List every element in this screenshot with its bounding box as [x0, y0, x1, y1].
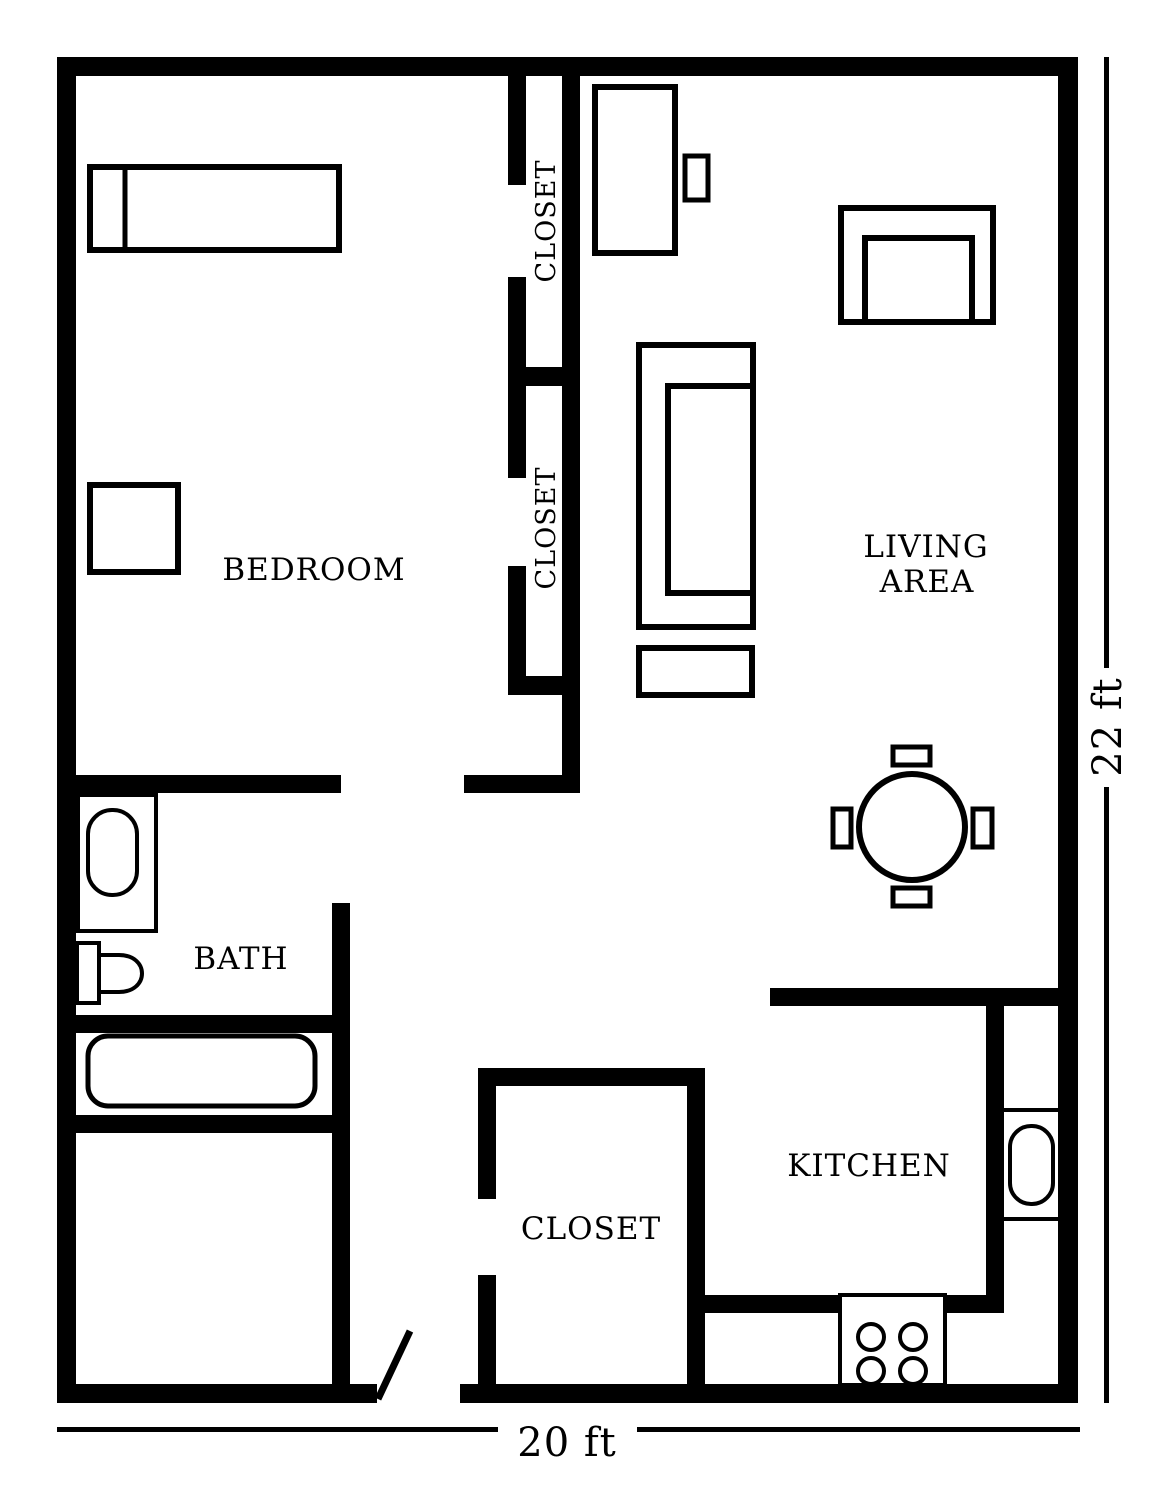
dining-chair-west	[833, 809, 851, 847]
kitchen-divider-wall	[986, 1006, 1004, 1313]
bedroom-south-wall	[57, 775, 341, 793]
wall-top	[57, 57, 1078, 76]
entry-door-leaf	[378, 1331, 410, 1399]
width-dimension-line-right	[637, 1427, 1080, 1432]
kitchen-counter-wall-east	[945, 1295, 1004, 1313]
tub-north-wall	[76, 1015, 332, 1033]
closet-west-wall-lower	[478, 1275, 496, 1385]
floor-plan: BEDROOM LIVING AREA BATH KITCHEN CLOSET …	[0, 0, 1163, 1488]
closet-west-wall-upper	[478, 1068, 496, 1199]
bedroom-furniture	[90, 167, 339, 572]
wall-left	[57, 57, 76, 1403]
closet-bottom-label: CLOSET	[521, 1211, 661, 1247]
height-dimension-line-bottom	[1104, 787, 1109, 1403]
closet-lower-label: CLOSET	[531, 467, 562, 590]
width-dimension-line-left	[57, 1427, 498, 1432]
stove-burner-4	[900, 1358, 926, 1384]
stove	[840, 1295, 945, 1385]
stove-burner-3	[858, 1358, 884, 1384]
sofa-seat	[668, 386, 753, 593]
coffee-table	[639, 648, 752, 695]
tub-south-wall	[76, 1115, 332, 1133]
toilet-tank	[77, 943, 99, 1003]
dining-table	[859, 774, 965, 880]
living-area-label-line1: LIVING	[863, 529, 988, 565]
media-console	[685, 156, 708, 200]
wall-bottom-left	[57, 1384, 377, 1403]
corridor-wall	[562, 76, 580, 793]
kitchen-north-wall	[770, 988, 1078, 1006]
bedroom-closet-bottom-cap	[508, 676, 562, 695]
bedroom-closet-divider	[508, 367, 562, 386]
living-area-furniture	[595, 87, 993, 906]
kitchen-counter-wall-west	[705, 1295, 840, 1313]
dining-chair-east	[973, 809, 992, 847]
closet-north-wall	[478, 1068, 705, 1086]
hallway-stub-wall	[464, 775, 580, 793]
height-dimension-label: 22 ft	[1085, 677, 1131, 777]
kitchen-sink	[1010, 1126, 1053, 1204]
wall-bottom-right	[460, 1384, 1078, 1403]
closet-east-wall	[687, 1068, 705, 1385]
living-area-label-line2: AREA	[879, 564, 975, 600]
bath-label: BATH	[193, 941, 288, 977]
wall-right	[1058, 57, 1078, 1403]
tv-stand	[595, 87, 675, 253]
dining-chair-south	[893, 888, 930, 906]
closet-upper-label: CLOSET	[531, 160, 562, 283]
bedroom-closet-wall-upper	[508, 76, 526, 185]
bathtub	[88, 1036, 315, 1106]
width-dimension-label: 20 ft	[517, 1420, 617, 1466]
bath-east-wall	[332, 903, 350, 1403]
kitchen-label: KITCHEN	[787, 1148, 951, 1184]
toilet-bowl	[99, 955, 142, 992]
dining-chair-north	[893, 747, 930, 765]
nightstand	[90, 485, 178, 572]
stove-burner-1	[858, 1324, 884, 1350]
stove-burner-2	[900, 1324, 926, 1350]
armchair-seat	[865, 238, 972, 322]
height-dimension-line-top	[1104, 57, 1109, 668]
bedroom-closet-wall-lower	[508, 566, 526, 695]
bathroom-sink	[88, 810, 137, 895]
bedroom-label: BEDROOM	[222, 552, 405, 588]
